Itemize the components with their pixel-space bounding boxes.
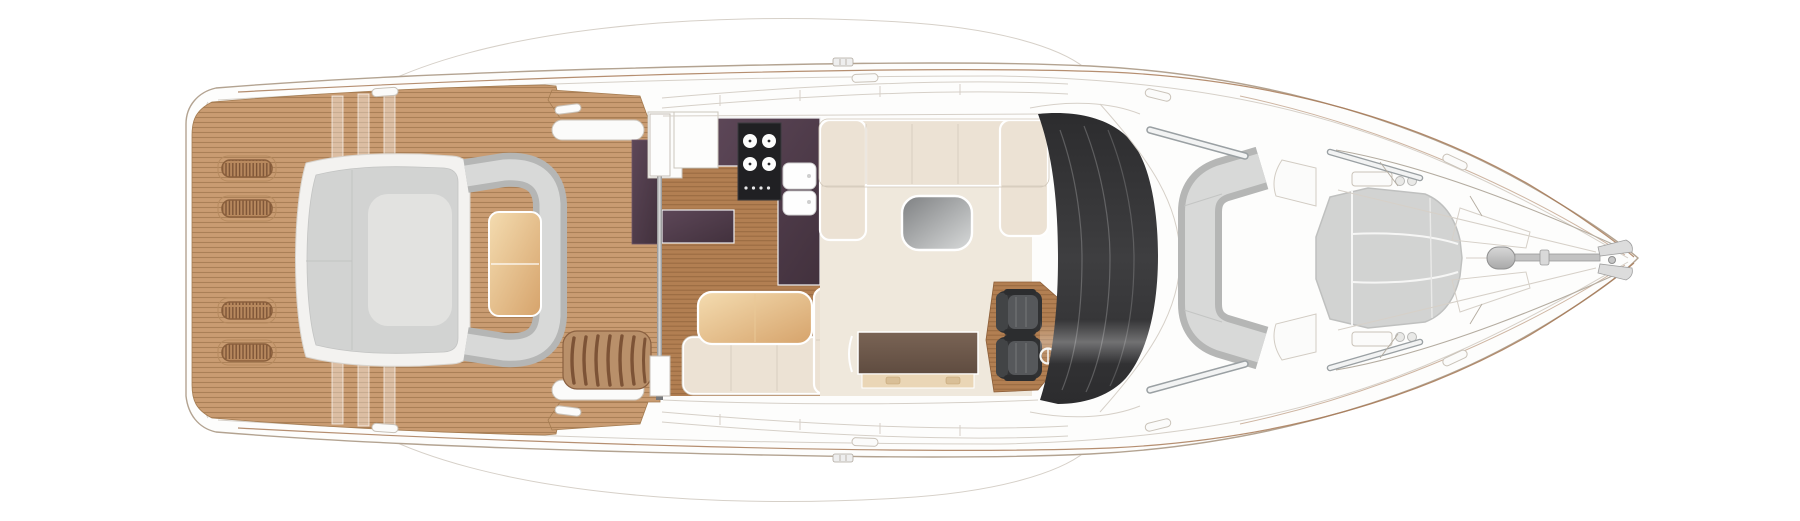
sink [783,163,816,189]
helm-seat [996,335,1042,381]
sideboard [849,332,978,388]
cleat [372,423,398,433]
door-leaf-top [650,114,670,176]
sink [783,191,816,215]
side-gate-top [552,120,644,140]
cockpit-table [489,212,541,316]
dinette-table [698,292,812,344]
cleat [372,87,398,97]
helm-seat [996,289,1042,335]
flybridge-steps [563,331,651,389]
salon [819,119,1062,396]
coffee-table [902,196,972,250]
cooktop [738,123,781,200]
sunpad-hinge-plate [1352,332,1392,346]
yacht-deck-plan [0,0,1800,521]
deck-plan-canvas [0,0,1800,521]
aft-sunpad-headrest [368,194,452,326]
door-leaf-bottom [650,356,670,396]
galley-cabinet [674,112,718,168]
sunpad-hinge-plate [1352,172,1392,186]
galley-peninsula [662,210,734,243]
cleat [852,74,878,83]
aft-sunpad-lounge [296,154,551,367]
cleat [852,438,878,447]
galley-sinks [783,163,816,215]
